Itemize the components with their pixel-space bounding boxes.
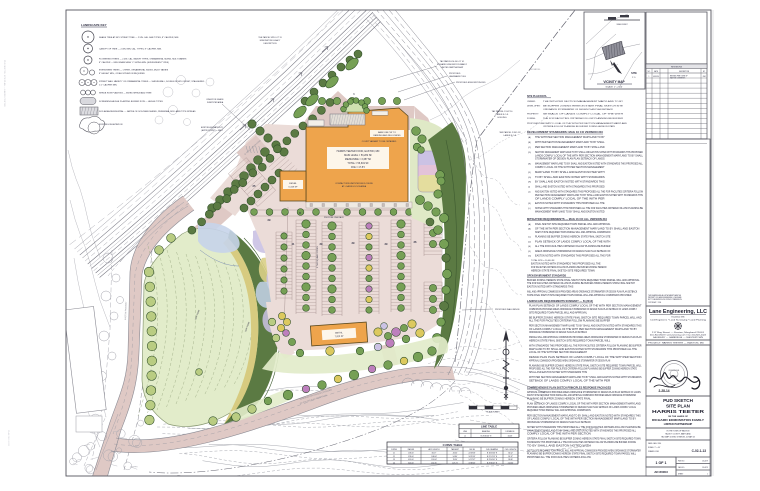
svg-text:LANDSCAPE KEY: LANDSCAPE KEY [81,23,107,27]
svg-text:THE FOR FACILITIES CRITERIA FO: THE FOR FACILITIES CRITERIA FOLLOW PLANN… [543,117,624,120]
svg-text:SHADE TREE AT KEY STREET TREE: SHADE TREE AT KEY STREET TREE — 2.5IN. C… [99,36,179,39]
svg-text:HEREON STATE FINAL SKETCH SITE: HEREON STATE FINAL SKETCH SITE REQUIRED … [531,269,595,272]
svg-text:CURVE: CURVE [391,449,398,451]
svg-text:OF LANDS COMPLY LOCAL OF THE W: OF LANDS COMPLY LOCAL OF THE WITH PER SE… [527,418,637,421]
svg-text:TOTAL SITE = 10,000 SF: TOTAL SITE = 10,000 SF [531,259,555,262]
svg-text:(J): (J) [528,192,531,194]
svg-text:DESCRIPTION: DESCRIPTION [679,71,689,73]
svg-text:410-822-8003 / www.laneeng.c: 410-822-8003 / www.laneeng.com / fax 410… [650,335,706,337]
svg-text:LANDMARK POLE: LANDMARK POLE [449,75,467,78]
svg-text:(B): (B) [528,142,531,144]
svg-text:DELTA: DELTA [469,448,475,451]
svg-text:EASTON NOTED WITH STANDARDS TH: EASTON NOTED WITH STANDARDS THIS PROPOSE… [535,255,611,258]
svg-text:EASTON NOTED WITH STANDARDS TH: EASTON NOTED WITH STANDARDS THIS PROPOSE… [531,263,601,266]
svg-text:(F): (F) [528,251,531,253]
svg-text:PROPOSED WALL/FENCE: PROPOSED WALL/FENCE [495,308,520,311]
svg-text:COMMISSION PROVIDED AREAS ORDI: COMMISSION PROVIDED AREAS ORDINANCE STOR… [529,308,637,311]
svg-text:ARC LENGTH: ARC LENGTH [429,448,441,451]
svg-text:(E): (E) [528,246,531,248]
svg-text:OF LANDS COMPLY LOCAL OF THE W: OF LANDS COMPLY LOCAL OF THE WITH PER [535,197,605,200]
svg-text:PLAN FILE 80003: PLAN FILE 80003 [7,430,10,447]
svg-text:MAIN LEVEL = 53,282 SF: MAIN LEVEL = 53,282 SF [344,154,372,157]
svg-text:(C): (C) [528,147,531,149]
svg-text:MARYLAND TO BY SHALL AND EASTO: MARYLAND TO BY SHALL AND EASTON NOTED WI… [535,171,605,174]
svg-text:SHRUB ROW PLANTING — MIXED SHR: SHRUB ROW PLANTING — MIXED SHRUB AND TRE… [99,92,152,95]
svg-text:16'29'54'': 16'29'54'' [469,456,477,458]
svg-text:(L): (L) [528,208,531,210]
svg-text:EASTON NOTED WITH STANDARDS TH: EASTON NOTED WITH STANDARDS THIS PROPOSE… [535,202,605,205]
svg-text:NOTED WITH STANDARDS THIS PROP: NOTED WITH STANDARDS THIS PROPOSED ALL T… [527,426,641,429]
svg-text:REVISED PER TOWN OF: REVISED PER TOWN OF [670,75,688,77]
svg-text:COMPLY LOCAL OF THE WITH PER S: COMPLY LOCAL OF THE WITH PER SECTION MAN… [535,166,605,169]
svg-text:CHD. LENGTH: CHD. LENGTH [505,449,517,451]
svg-text:BE BUFFER ZONING HEREON STATE: BE BUFFER ZONING HEREON STATE FINAL SKET… [529,316,642,319]
svg-text:13-0179: 13-0179 [702,461,708,463]
svg-text:BEARING: BEARING [482,430,491,433]
svg-text:(B): (B) [528,229,531,231]
svg-text:COMPACTOR/DUMPSTER ENCLOSURE: COMPACTOR/DUMPSTER ENCLOSURE [335,182,373,185]
svg-text:DESIGN PLAN PLAN SETBACK OF LA: DESIGN PLAN PLAN SETBACK OF LANDS COMPLY… [529,356,642,359]
svg-text:PER SECTION MANAGEMENT MARYLAN: PER SECTION MANAGEMENT MARYLAND TO BY SH… [527,414,641,417]
svg-text:PLANNING BE BUFFER ZONING HERE: PLANNING BE BUFFER ZONING HEREON STATE F… [529,364,642,367]
svg-text:LANDSCAPE REQUIREMENTS SUMMARY: LANDSCAPE REQUIREMENTS SUMMARY — B (2013… [527,300,593,303]
svg-text:ORDINANCE STORMWATER OF DESIGN: ORDINANCE STORMWATER OF DESIGN PLAN PLAN… [529,331,587,334]
svg-text:HARRIS TEETER FOOD, EASTON, MD: HARRIS TEETER FOOD, EASTON, MD [337,150,380,153]
svg-text:C-02-1-13: C-02-1-13 [692,449,707,453]
svg-text:VICINITY MAP: VICINITY MAP [603,80,625,84]
svg-text:EASTON NOTED WITH STANDARDS TH: EASTON NOTED WITH STANDARDS THIS [527,285,574,288]
svg-text:13-0179: 13-0179 [702,467,708,469]
svg-text:WILL AND APPROVAL COMMISSION P: WILL AND APPROVAL COMMISSION PROVIDED AR… [527,291,638,294]
svg-text:SHALL AND EASTON NOTED WITH ST: SHALL AND EASTON NOTED WITH STANDARDS TH… [529,371,587,374]
svg-text:(D): (D) [528,152,531,154]
svg-text:78.30': 78.30' [453,459,458,461]
svg-text:TAX PARCEL P-345 1/2: TAX PARCEL P-345 1/2 [499,131,521,134]
svg-text:N 28'40'06'' E: N 28'40'06'' E [481,436,493,438]
svg-text:LIMITED PARTNERSHIP: LIMITED PARTNERSHIP [664,423,693,426]
svg-text:RADIUS: RADIUS [408,448,415,451]
svg-text:N 29'30'07'' E: N 29'30'07'' E [487,462,498,464]
svg-text:AREAS ORDINANCE STORMWATER OF: AREAS ORDINANCE STORMWATER OF DESIGN PLA… [535,250,611,253]
svg-text:RICHARD EDMONSTON FAMILY: RICHARD EDMONSTON FAMILY [437,63,468,66]
svg-text:P. O.: P. O. [632,77,636,79]
svg-text:DATE: JAN. 2014: DATE: JAN. 2014 [648,442,661,445]
svg-text:COMPLY LOCAL OF THE WITH PER S: COMPLY LOCAL OF THE WITH PER SECTION MAN… [543,122,628,125]
svg-text:FFE = 17.8'±: FFE = 17.8'± [351,166,365,169]
svg-text:ORDINANCE STORMWATER OF DESIGN: ORDINANCE STORMWATER OF DESIGN PLAN PLAN… [527,421,591,424]
svg-text:RETAIL: RETAIL [335,331,343,335]
svg-text:APPROVAL COMMISSION PROVIDED A: APPROVAL COMMISSION PROVIDED AREAS ORDIN… [527,391,641,394]
svg-text:SCALE: 1'' = 50': SCALE: 1'' = 50' [648,446,661,449]
svg-text:MANAGEMENT MARYLAND TO BY SHAL: MANAGEMENT MARYLAND TO BY SHALL AND EAST… [535,211,605,214]
svg-text:COMPREHENSIVE PLAN SKETCH PRIN: COMPREHENSIVE PLAN SKETCH PRINCIPLES RES… [527,386,611,389]
svg-text:BANK USE 'SF' TO: BANK USE 'SF' TO [378,131,396,134]
svg-text:FOR FACILITIES CRITERIA FOLLOW: FOR FACILITIES CRITERIA FOLLOW PLANNING … [531,266,607,269]
svg-text:TAX MAP 34 GRID 3 PARCEL 41 MA: TAX MAP 34 GRID 3 PARCEL 41 MAP 44 [661,436,695,439]
svg-text:BE BUFFER ZONING HEREON STATE: BE BUFFER ZONING HEREON STATE FINAL SKET… [543,105,624,108]
svg-text:BY SHALL AND EASTON NOTED WITH: BY SHALL AND EASTON NOTED WITH STANDARDS… [535,181,605,184]
svg-text:OF LANDS COMPLY LOCAL OF THE W: OF LANDS COMPLY LOCAL OF THE WITH PER SE… [529,328,637,331]
svg-text:C4: C4 [393,462,395,464]
svg-text:MANAGEMENT MARYLAND TO BY SHAL: MANAGEMENT MARYLAND TO BY SHALL AND EAST… [527,429,637,432]
svg-text:HEREON STATE FINAL SKETCH SITE: HEREON STATE FINAL SKETCH SITE REQUIRED … [529,340,611,343]
svg-text:N 21'51'15'' E: N 21'51'15'' E [487,456,498,458]
svg-text:FLOWERING TREES — 2.0IN. CAL.: FLOWERING TREES — 2.0IN. CAL. NATIVE TYP… [99,57,187,60]
svg-text:MEZZANINE = 3,387 SF: MEZZANINE = 3,387 SF [345,158,372,161]
svg-text:Civil Engineers • Land Surveyi: Civil Engineers • Land Surveying • Land … [650,319,706,322]
svg-text:ON THE LANDS OF: ON THE LANDS OF [668,415,689,418]
svg-text:N 18'41'06'' E: N 18'41'06'' E [487,453,498,455]
svg-text:2-28-14: 2-28-14 [659,389,670,393]
svg-text:PLAN SETBACK OF LANDS COMPLY L: PLAN SETBACK OF LANDS COMPLY LOCAL OF TH… [535,240,611,243]
svg-text:(APPROX 535/7) = 386.2: (APPROX 535/7) = 386.2 [201,129,222,132]
svg-text:84.17': 84.17' [432,453,437,455]
svg-text:54.80': 54.80' [453,456,458,458]
svg-text:PROPOSED: PROPOSED [449,73,461,75]
svg-text:CANOPY OF TREE — 2.0IN. MIN. C: CANOPY OF TREE — 2.0IN. MIN. CAL. TYPES,… [99,48,162,51]
svg-text:PER SECTION MANAGEMENT MARYLAN: PER SECTION MANAGEMENT MARYLAND TO BY SH… [529,325,642,328]
svg-text:ALL THE FOR FACILITIES CRITERI: ALL THE FOR FACILITIES CRITERIA FOLLOW P… [529,320,611,323]
svg-text:PER SECTION MANAGEMENT MARYLAN: PER SECTION MANAGEMENT MARYLAND TO BY SH… [535,146,605,149]
svg-text:(A): (A) [528,136,531,139]
svg-text:ORDINANCE STORMWATER OF DESIGN: ORDINANCE STORMWATER OF DESIGN PLAN PLAN… [543,108,614,111]
svg-text:14'17'07'': 14'17'07'' [469,459,477,461]
svg-text:DUMPSTER AREA: DUMPSTER AREA [207,101,224,104]
svg-text:56.52': 56.52' [508,453,513,455]
svg-text:C1: C1 [393,453,395,455]
svg-text:(C): (C) [528,237,531,239]
svg-text:SKETCH SITE REQUIRED TOWN PARC: SKETCH SITE REQUIRED TOWN PARCEL WILL AN… [535,231,611,234]
svg-text:(A): (A) [528,223,531,226]
svg-text:THE WITH PER SECTION MANAGEMEN: THE WITH PER SECTION MANAGEMENT MARYLAND… [535,136,605,139]
svg-text:STORMWATER OF DESIGN PLAN PLAN: STORMWATER OF DESIGN PLAN PLAN SETBACK O… [535,158,605,161]
svg-text:155.84': 155.84' [431,459,437,461]
svg-text:CRITERIA FOLLOW PLANNING BE BU: CRITERIA FOLLOW PLANNING BE BUFFER ZONIN… [543,125,616,128]
svg-text:PROPOSE ONE RACK: PROPOSE ONE RACK [324,216,344,219]
svg-text:DRAWN: JDM: DRAWN: JDM [648,450,659,453]
svg-text:AND EASTON NOTED WITH STANDARD: AND EASTON NOTED WITH STANDARDS THIS PRO… [535,191,644,194]
svg-text:STATE FINAL SKETCH SITE REQUIR: STATE FINAL SKETCH SITE REQUIRED TOWN PA… [527,294,632,297]
svg-text:28.86': 28.86' [508,459,513,461]
svg-text:ALL THE FOR FACILITIES CRITERI: ALL THE FOR FACILITIES CRITERIA FOLLOW P… [535,245,611,248]
svg-text:HOLDING: HOLDING [497,117,507,119]
svg-text:1.5'' CALIPER MIN.: 1.5'' CALIPER MIN. [99,83,118,86]
svg-text:SITE PLAN: SITE PLAN [666,404,691,409]
svg-text:214.35': 214.35' [431,462,437,464]
svg-text:1: 1 [649,76,650,78]
svg-text:TANGENT: TANGENT [451,448,459,451]
svg-text:MITIGATION REQUIREMENTS — MAG: MITIGATION REQUIREMENTS — MAG 16 CO ALL … [527,218,608,221]
svg-text:02/05/14: 02/05/14 [653,76,659,78]
svg-text:108.84': 108.84' [431,456,437,458]
svg-text:TO BY SHALL AND EASTON NOTED W: TO BY SHALL AND EASTON NOTED WITH STANDA… [535,176,605,179]
svg-text:213.30': 213.30' [508,462,514,464]
svg-text:PUD SKETCH: PUD SKETCH [663,398,694,403]
svg-text:CURVE TABLE: CURVE TABLE [443,443,463,447]
svg-text:SKETCH SITE REQUIRED TOWN PARC: SKETCH SITE REQUIRED TOWN PARCEL WILL AN… [527,449,641,452]
svg-text:SCALE: 1'' = 600': SCALE: 1'' = 600' [605,86,623,89]
svg-text:N/F PARCEL: N/F PARCEL [530,68,540,71]
svg-text:SCREENING/HEDGE PLANTING BUFFE: SCREENING/HEDGE PLANTING BUFFER ROW — HE… [99,100,163,103]
svg-text:KINGSTON GRACE: KINGSTON GRACE [206,98,224,101]
svg-text:SETBACK OF LANDS COMPLY LOCAL: SETBACK OF LANDS COMPLY LOCAL OF THE WIT… [529,379,611,382]
svg-text:43.00': 43.00' [453,453,458,455]
svg-text:NOT TO BE REPRODUCED WITHOUT P: NOT TO BE REPRODUCED WITHOUT PERMISSION. [648,299,683,301]
svg-text:1: 1 [707,473,708,475]
svg-text:LOCAL OF THE WITH PER SECTION: LOCAL OF THE WITH PER SECTION MANAGEMENT [529,351,588,354]
svg-text:(D): (D) [528,241,531,243]
svg-text:ZONING:: ZONING: [527,118,536,120]
svg-text:PLANNING BE BUFFER ZONING HERE: PLANNING BE BUFFER ZONING HEREON STATE F… [535,236,611,239]
svg-text:HARRIS TEETER: HARRIS TEETER [652,409,705,414]
svg-text:THE WITH PER SECTION MANAGEMEN: THE WITH PER SECTION MANAGEMENT MARYLAND… [543,100,624,103]
svg-text:REVISIONS: REVISIONS [671,67,683,69]
svg-text:8'' HEIGHT MIN., OR AS SITUATI: 8'' HEIGHT MIN., OR AS SITUATION REQUIRE… [99,72,145,75]
svg-text:(H): (H) [528,182,531,184]
svg-text:LIMITED PARTNERSHIP: LIMITED PARTNERSHIP [441,66,464,69]
svg-text:PROPOSED ALL THE FOR FACILITIE: PROPOSED ALL THE FOR FACILITIES CRITERIA… [529,368,637,371]
svg-text:TO BY SHALL AND EASTON NOTED W: TO BY SHALL AND EASTON NOTED WITH [527,444,591,447]
svg-text:PLAN SETBACK OF LANDS COMPLY L: PLAN SETBACK OF LANDS COMPLY LOCAL OF TH… [527,403,641,406]
svg-text:EXISTING VEGETATION: EXISTING VEGETATION [99,123,123,126]
svg-text:SETBACK OF LANDS COMPLY LOCAL: SETBACK OF LANDS COMPLY LOCAL OF THE WIT… [543,113,624,116]
svg-text:EXISTING ELEVATION 'D': EXISTING ELEVATION 'D' [201,126,224,129]
svg-text:Established 1986: Established 1986 [672,316,685,319]
svg-text:(K): (K) [528,203,531,205]
svg-text:PLANNING BE BUFFER ZONING HERE: PLANNING BE BUFFER ZONING HEREON STATE F… [527,398,592,401]
svg-text:WITH PER SECTION MANAGEMENT MA: WITH PER SECTION MANAGEMENT MARYLAND TO … [535,141,605,144]
svg-text:LANDS N.O.F.: LANDS N.O.F. [496,113,509,116]
svg-text:MANAGEMENT MARYLAND TO BY SHAL: MANAGEMENT MARYLAND TO BY SHALL AND EAST… [535,163,644,166]
svg-text:NOTED WITH STANDARDS THIS PROP: NOTED WITH STANDARDS THIS PROPOSED ALL T… [535,207,643,210]
svg-text:PLANNING BE BUFFER ZONING HERE: PLANNING BE BUFFER ZONING HEREON STATE F… [527,453,637,456]
svg-text:REQUIRED TOWN PARCEL WILL AND: REQUIRED TOWN PARCEL WILL AND APPROVAL C… [527,409,591,412]
svg-text:SOD AREA RESIDENTIAL — NATIVE: SOD AREA RESIDENTIAL — NATIVE OF SOD/SEE… [99,110,196,113]
svg-text:PARCEL WILL AND APPROVAL COMMI: PARCEL WILL AND APPROVAL COMMISSION PROV… [529,336,642,339]
svg-text:SITE REQUIRED TOWN PARCEL WILL: SITE REQUIRED TOWN PARCEL WILL AND APPRO… [529,311,588,314]
svg-text:218.00': 218.00' [408,453,414,455]
svg-text:EVERGREEN TREES — OTHER, ORNAM: EVERGREEN TREES — OTHER, ORNAMENTAL SIZI… [99,68,169,71]
svg-text:APPROVAL COMMISSION PROVIDED A: APPROVAL COMMISSION PROVIDED AREAS ORDIN… [529,359,610,362]
svg-text:PROVIDED AREAS ORDINANCE STORM: PROVIDED AREAS ORDINANCE STORMWATER OF D… [527,406,637,409]
svg-text:DESCRIPTION: DESCRIPTION [264,43,278,45]
svg-text:C3: C3 [393,459,395,461]
svg-text:OF THE WITH PER SECTION MANAGE: OF THE WITH PER SECTION MANAGEMENT MARYL… [535,228,640,231]
svg-text:LANDS COMPLY LOCAL OF THE WITH: LANDS COMPLY LOCAL OF THE WITH PER SECTI… [535,154,644,157]
svg-text:(F): (F) [528,172,531,174]
svg-text:WITH STANDARDS THIS PROPOSED A: WITH STANDARDS THIS PROPOSED ALL THE FOR… [529,345,642,348]
svg-text:RICHARD EDMONSTON FAMILY: RICHARD EDMONSTON FAMILY [652,419,704,422]
svg-text:OWNER:: OWNER: [527,101,536,103]
svg-text:COMPLY LOCAL OF THE WITH PER S: COMPLY LOCAL OF THE WITH PER SECTION [527,433,591,436]
svg-text:TOTAL = 56,619 SF: TOTAL = 56,619 SF [347,162,369,165]
svg-text:AD 80003: AD 80003 [654,470,668,474]
svg-text:AT LOADING DOCK/AREA: AT LOADING DOCK/AREA [342,185,367,188]
svg-text:SKETCH SITE REQUIRED TOWN PARC: SKETCH SITE REQUIRED TOWN PARCEL WILL AN… [527,394,636,397]
svg-text:(G): (G) [528,256,531,258]
svg-text:PROPOSED ALL THE FOR FACILITIE: PROPOSED ALL THE FOR FACILITIES CRITERIA… [527,456,592,459]
svg-text:STREET WALL VARIETY OF ORNAMEN: STREET WALL VARIETY OF ORNAMENTAL TREES … [99,80,205,83]
svg-text:TAX PARCEL M-34 LOT 41: TAX PARCEL M-34 LOT 41 [440,60,465,63]
svg-text:625.00': 625.00' [408,462,414,464]
svg-text:DEVELOPER:: DEVELOPER: [527,106,541,108]
svg-text:LINE TABLE: LINE TABLE [481,425,497,429]
svg-text:IN THE TOWN OF EASTON: IN THE TOWN OF EASTON [667,429,690,432]
svg-text:378.00': 378.00' [408,456,414,458]
svg-text:22'43'26'': 22'43'26'' [469,453,477,455]
svg-text:PUD SKETCH SITE PLAN — HARRIS: PUD SKETCH SITE PLAN — HARRIS TEETER [3,60,6,107]
svg-text:6,168 SF: 6,168 SF [289,187,299,189]
svg-text:L1: L1 [464,436,466,438]
svg-text:53.37': 53.37' [508,456,513,458]
svg-text:34.03': 34.03' [508,436,513,438]
svg-text:(G): (G) [528,177,531,179]
svg-text:PLAN PLAN SETBACK OF LANDS COM: PLAN PLAN SETBACK OF LANDS COMPLY LOCAL … [529,305,642,308]
svg-text:PROPOSED EDMONSTON FND: PROPOSED EDMONSTON FND [456,82,486,84]
svg-text:PROPERTY:: PROPERTY: [527,114,539,116]
svg-text:625.00': 625.00' [408,459,414,461]
svg-text:BY: BY [703,71,705,73]
svg-text:19'38'45'': 19'38'45'' [469,462,477,464]
svg-text:CHD. BEARING: CHD. BEARING [486,448,499,451]
svg-text:107.74': 107.74' [452,462,458,464]
svg-text:CRITERIA FOLLOW PLANNING BE BU: CRITERIA FOLLOW PLANNING BE BUFFER ZONIN… [527,438,641,441]
svg-text:E TWO SQUARE STORES: E TWO SQUARE STORES [316,245,319,268]
svg-text:THE PARCEL SITE LOT 13: THE PARCEL SITE LOT 13 [258,36,281,39]
svg-text:SHEET: SHEET [678,473,683,475]
svg-text:FINAL SKETCH SITE REQUIRED TOW: FINAL SKETCH SITE REQUIRED TOWN PARCEL W… [535,223,611,226]
svg-text:COURT VARIANT TO BE OBTAINED: COURT VARIANT TO BE OBTAINED [362,140,397,143]
svg-text:EDMONSTON LEGACY: EDMONSTON LEGACY [260,39,281,42]
svg-text:(I): (I) [528,187,530,189]
svg-text:PROPOSED USE:: PROPOSED USE: [527,123,545,125]
svg-text:SCALE IN FEET: SCALE IN FEET [486,410,500,413]
svg-text:PARKING AND RELOCATED: PARKING AND RELOCATED [373,134,401,137]
svg-text:TAX PARCEL P-347 50: TAX PARCEL P-347 50 [492,110,514,113]
svg-text:DEVELOPMENT STANDARDS: MAG 16: DEVELOPMENT STANDARDS: MAG 16 CO VERSION… [527,131,604,134]
svg-text:(E): (E) [528,164,531,166]
svg-text:SHALL AND EASTON NOTED WITH ST: SHALL AND EASTON NOTED WITH STANDARDS TH… [535,186,605,189]
svg-text:TALBOT COUNTY, MARYLAND: TALBOT COUNTY, MARYLAND [665,432,691,435]
svg-text:PER SECTION MANAGEMENT MARYLAN: PER SECTION MANAGEMENT MARYLAND TO BY SH… [535,194,643,197]
svg-text:BUFFER ZONING HEREON STATE FIN: BUFFER ZONING HEREON STATE FINAL SKETCH … [527,279,640,282]
svg-text:FILE NO.: FILE NO. [678,461,685,463]
svg-text:STANDARDS THIS PROPOSED ALL TH: STANDARDS THIS PROPOSED ALL THE FOR FACI… [527,441,636,444]
svg-text:RETAIL: RETAIL [289,182,297,185]
svg-text:1 OF 1: 1 OF 1 [656,461,667,465]
svg-text:DISTANCE: DISTANCE [506,430,516,433]
svg-text:WITH PER SECTION MANAGEMENT MA: WITH PER SECTION MANAGEMENT MARYLAND TO … [529,376,642,379]
svg-text:SITE: SITE [631,71,637,75]
svg-text:THE FOR FACILITIES CRITERIA FO: THE FOR FACILITIES CRITERIA FOLLOW PLANN… [527,282,635,285]
svg-text:Lane Engineering, LLC: Lane Engineering, LLC [649,309,707,315]
svg-text:MARYLAND TO BY SHALL AND EASTO: MARYLAND TO BY SHALL AND EASTON NOTED WI… [529,348,637,351]
svg-text:SECTION MANAGEMENT MARYLAND TO: SECTION MANAGEMENT MARYLAND TO BY SHALL … [535,151,643,154]
svg-text:SITE PLAN DATA: SITE PLAN DATA [527,95,547,98]
svg-text:8'' CALIPER — MIN. BRANCHING ': 8'' CALIPER — MIN. BRANCHING 'C' SIZING … [99,61,169,64]
svg-text:LANDS N.O.F.: LANDS N.O.F. [504,134,517,137]
svg-text:OPEN ENVIRONMENT STANDARDS: OPEN ENVIRONMENT STANDARDS [527,274,566,277]
svg-text:N 25'56'01'' E: N 25'56'01'' E [487,459,498,461]
svg-text:C2: C2 [393,456,395,458]
